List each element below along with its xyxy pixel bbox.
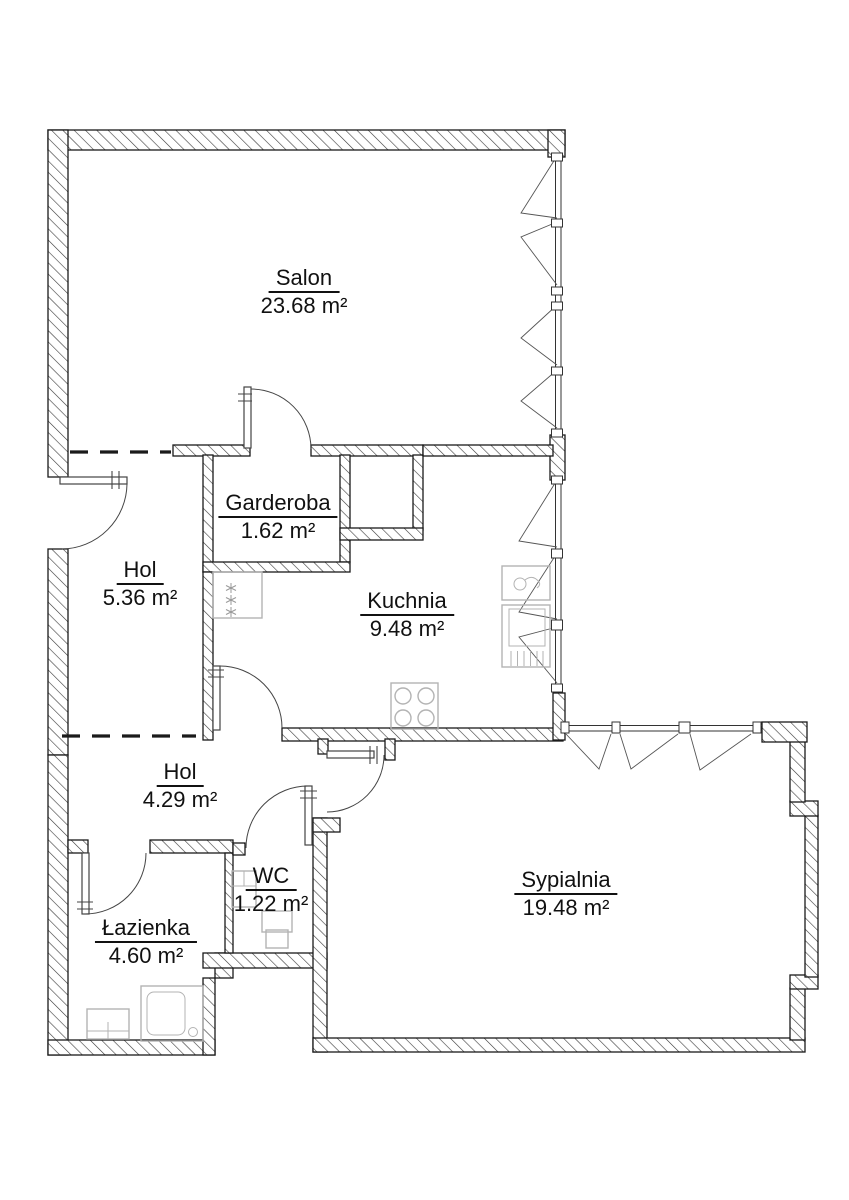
kitchen-cabinet-fixture <box>502 605 550 667</box>
room-name: Garderoba <box>218 491 337 518</box>
room-area: 1.62 m² <box>218 519 337 543</box>
radiator-fixture <box>213 572 262 618</box>
room-name: Łazienka <box>95 916 197 943</box>
wall-wc-bottom <box>203 953 327 968</box>
room-name: Kuchnia <box>360 589 454 616</box>
room-label-kuchnia: Kuchnia 9.48 m² <box>360 589 454 641</box>
door-kitchen <box>208 666 282 730</box>
room-area: 9.48 m² <box>360 617 454 641</box>
room-name: Salon <box>269 266 339 293</box>
wall-garderoba-top-right <box>311 445 423 456</box>
room-label-hol-upper: Hol 5.36 m² <box>103 558 178 610</box>
room-name: WC <box>246 864 297 891</box>
room-area: 1.22 m² <box>234 892 309 916</box>
wall-wc-right-cap <box>313 818 340 832</box>
kitchen-sink-fixture <box>502 566 550 600</box>
wall-bedroom-door-jamb-right <box>385 739 395 760</box>
wall-wc-top-bit <box>233 843 245 855</box>
door-garderoba <box>238 387 311 449</box>
wall-top <box>48 130 565 150</box>
room-area: 5.36 m² <box>103 586 178 610</box>
room-area: 4.60 m² <box>95 944 197 968</box>
wall-bathroom-right <box>203 978 215 1055</box>
wall-window-divider <box>550 435 565 480</box>
wall-bedroom-right-niche <box>805 815 818 977</box>
wall-left-lower <box>48 755 68 1055</box>
wall-bedroom-top-right <box>762 722 807 742</box>
door-entrance <box>60 471 127 549</box>
room-name: Sypialnia <box>514 868 617 895</box>
room-label-lazienka: Łazienka 4.60 m² <box>95 916 197 968</box>
wall-bedroom-right-lower <box>790 988 805 1040</box>
wall-bathroom-top-left <box>68 840 88 853</box>
wall-garderoba-left <box>203 455 213 572</box>
wall-bedroom-right-upper <box>790 740 805 802</box>
wall-shaft-right <box>413 455 423 530</box>
wall-left-upper <box>48 130 68 477</box>
door-wc <box>246 786 317 848</box>
stove-fixture <box>391 683 438 729</box>
wall-left-middle <box>48 549 68 755</box>
room-area: 23.68 m² <box>261 294 348 318</box>
wall-wc-right <box>313 818 327 1052</box>
wall-shaft-bottom <box>340 528 423 540</box>
wall-shaft-left <box>340 455 350 562</box>
wall-bathroom-bottom <box>48 1040 215 1055</box>
room-label-hol-lower: Hol 4.29 m² <box>143 760 218 812</box>
door-bathroom <box>77 853 146 914</box>
bedroom-window <box>561 722 762 770</box>
room-label-sypialnia: Sypialnia 19.48 m² <box>514 868 617 920</box>
room-name: Hol <box>156 760 203 787</box>
door-bedroom <box>327 746 384 812</box>
room-area: 4.29 m² <box>143 788 218 812</box>
floor-plan: Salon 23.68 m² Garderoba 1.62 m² Hol 5.3… <box>0 0 849 1200</box>
toilet-fixture <box>262 911 292 948</box>
salon-window <box>521 153 563 437</box>
wall-bedroom-bottom <box>313 1038 805 1052</box>
room-label-garderoba: Garderoba 1.62 m² <box>218 491 337 543</box>
room-label-salon: Salon 23.68 m² <box>261 266 348 318</box>
wall-bedroom-step-upper <box>790 801 818 816</box>
room-name: Hol <box>116 558 163 585</box>
room-area: 19.48 m² <box>514 896 617 920</box>
bathtub-fixture <box>141 986 203 1041</box>
wall-bathroom-top-right <box>150 840 233 853</box>
room-label-wc: WC 1.22 m² <box>234 864 309 916</box>
wall-hall-kitchen <box>203 572 213 740</box>
bathroom-washbasin-fixture <box>87 1009 129 1039</box>
wall-kitchen-top <box>423 445 553 456</box>
wall-garderoba-bottom <box>203 562 350 572</box>
